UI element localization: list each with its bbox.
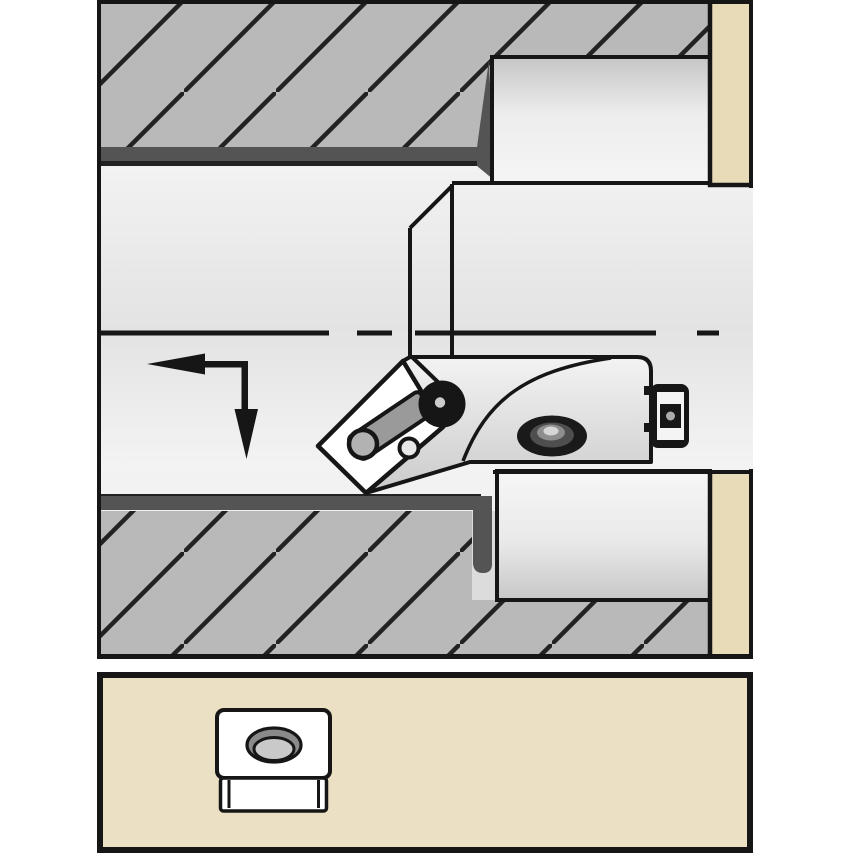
clamp-screw-side-view [517,416,587,457]
insert-icon-front-face [221,778,327,811]
bore-wall-surface-upper [101,147,479,162]
clamp-pivot [349,430,377,458]
counterbore-lower-wall [497,471,710,600]
bore-wall-surface-lower [101,496,481,510]
panel-frame [100,675,750,850]
insert-shape-icon [217,710,330,811]
insert-icon-hole-inner [254,738,294,761]
workpiece-end-face-lower [712,474,750,654]
lower-step-shoulder [473,496,492,573]
counterbore-upper-wall [492,57,710,183]
boring-operation-drawing [0,0,854,854]
workpiece-end-face-upper [712,3,750,185]
workpiece-section [101,3,753,654]
insert-hole [400,439,419,458]
insert-detail-panel [100,675,750,850]
catalog-figure [0,0,854,854]
cartridge-end-screw [644,384,689,448]
